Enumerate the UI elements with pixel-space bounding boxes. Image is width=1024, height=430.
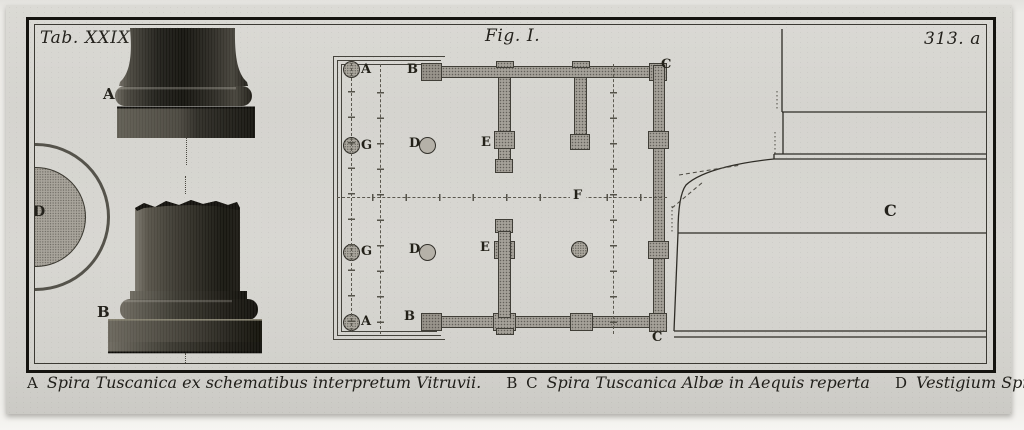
plan-stub-wall-foot — [570, 134, 590, 150]
etched-plate: Tab. XXIX. Fig. I. 313. a — [6, 5, 1012, 414]
caption-key: B C — [506, 374, 539, 392]
plan-centerline-tick-marks — [340, 194, 664, 201]
figure-number-label: Fig. I. — [485, 26, 540, 46]
plate-caption: ASpira Tuscanica ex schematibus interpre… — [27, 373, 1002, 392]
plan-label-e-top: E — [481, 135, 491, 150]
plan-wall-bottom — [423, 316, 667, 328]
profile-torus-curve — [678, 159, 774, 233]
profile-fillet — [774, 154, 986, 159]
profile-plinth — [674, 233, 986, 337]
tuscan-base-b-figure — [98, 194, 266, 360]
base-b-label: B — [97, 303, 111, 321]
caption-text: Spira Tuscanica ex schematibus interpret… — [47, 373, 481, 392]
caption-text: Vestigium Spiræ Albanæ. — [916, 373, 1024, 392]
fragment-d-label: D — [35, 204, 46, 220]
plan-column-circle-d-bottom — [419, 244, 436, 261]
tuscan-base-a-figure — [98, 25, 260, 145]
caption-entry: DVestigium Spiræ Albanæ. — [895, 373, 1024, 392]
base-b-axis-dotted-line-bottom — [185, 353, 186, 363]
plan-wall-end-b-bottom — [421, 313, 442, 331]
profile-c-label: C — [884, 201, 898, 220]
plan-stub-wall-upper-2 — [574, 77, 587, 137]
plan-label-a-bottom: A — [361, 314, 372, 329]
plan-label-d-bottom: D — [409, 242, 421, 257]
plan-wall-end-b-top — [421, 63, 442, 81]
plan-label-a-top: A — [361, 62, 372, 77]
plan-label-f: F — [570, 188, 586, 203]
base-profile-c-figure — [655, 25, 986, 361]
base-a-axis-dotted-line — [186, 138, 187, 165]
plan-wall-top — [423, 66, 667, 78]
caption-key: A — [27, 374, 40, 392]
plate-drawing-area: Tab. XXIX. Fig. I. 313. a — [35, 25, 986, 363]
plan-pilaster — [570, 313, 593, 331]
plan-stub-wall-e-lower — [498, 231, 511, 318]
caption-text: Spira Tuscanica Albæ in Aequis reperta — [547, 373, 870, 392]
plan-stub-wall-junction — [572, 61, 590, 68]
plan-stub-wall-foot — [495, 159, 513, 173]
base-a-label: A — [103, 85, 116, 103]
plan-stub-wall-junction — [496, 328, 514, 335]
plan-stub-wall-junction — [496, 61, 514, 68]
base-b-axis-dotted-line-top — [185, 176, 186, 194]
caption-key: D — [895, 374, 909, 392]
plan-column-circle-d-top — [419, 137, 436, 154]
plan-label-b-top: B — [407, 62, 418, 77]
scanned-engraving-page: Tab. XXIX. Fig. I. 313. a — [0, 0, 1024, 430]
plan-label-g-top: G — [361, 138, 373, 153]
caption-entry: ASpira Tuscanica ex schematibus interpre… — [27, 373, 481, 392]
caption-entry: B CSpira Tuscanica Albæ in Aequis repert… — [506, 373, 870, 392]
plan-label-b-bottom: B — [404, 309, 415, 324]
plan-column-circle-unlabeled — [571, 241, 588, 258]
plan-pilaster — [494, 131, 515, 149]
plan-label-g-bottom: G — [361, 244, 373, 259]
plan-label-d-top: D — [409, 136, 421, 151]
temple-plan-figure: A B C G D E F G D E A B C — [330, 51, 678, 351]
plan-label-e-bottom: E — [480, 240, 490, 255]
